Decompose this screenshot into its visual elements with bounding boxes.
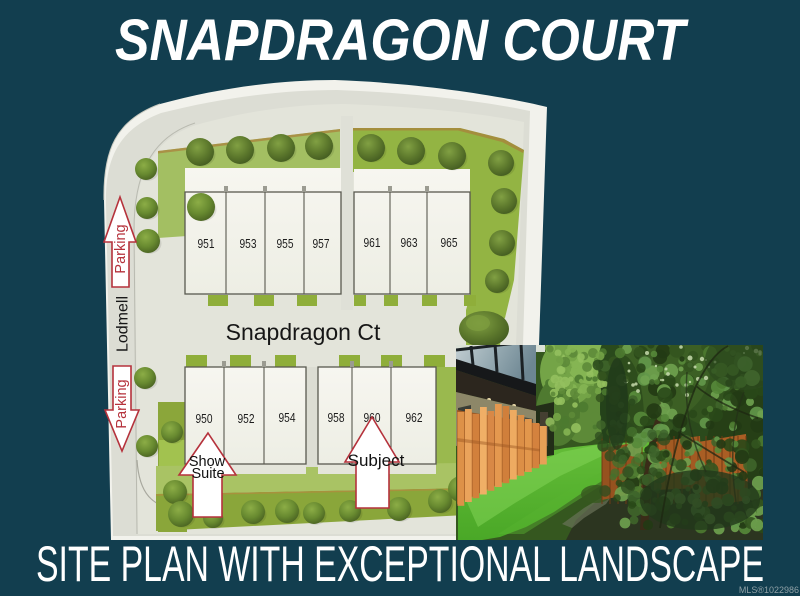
svg-text:952: 952 — [238, 411, 255, 426]
svg-text:961: 961 — [364, 235, 381, 250]
svg-text:965: 965 — [441, 235, 458, 250]
svg-text:962: 962 — [406, 410, 423, 425]
svg-text:Lodmell: Lodmell — [115, 296, 132, 352]
svg-text:958: 958 — [328, 410, 345, 425]
svg-text:951: 951 — [198, 236, 215, 251]
svg-text:SITE PLAN WITH EXCEPTIONAL LAN: SITE PLAN WITH EXCEPTIONAL LANDSCAPE — [36, 536, 764, 592]
svg-text:950: 950 — [196, 411, 213, 426]
svg-text:Subject: Subject — [348, 451, 405, 470]
svg-text:Parking: Parking — [113, 224, 129, 273]
svg-text:954: 954 — [279, 410, 296, 425]
svg-text:963: 963 — [401, 235, 418, 250]
svg-text:957: 957 — [313, 236, 330, 251]
svg-text:953: 953 — [240, 236, 257, 251]
svg-text:Snapdragon Ct: Snapdragon Ct — [226, 319, 381, 345]
svg-text:SNAPDRAGON COURT: SNAPDRAGON COURT — [115, 8, 689, 73]
svg-text:Suite: Suite — [191, 466, 224, 482]
svg-text:955: 955 — [277, 236, 294, 251]
svg-text:Parking: Parking — [114, 379, 130, 428]
svg-text:MLS®1022986: MLS®1022986 — [739, 585, 799, 595]
